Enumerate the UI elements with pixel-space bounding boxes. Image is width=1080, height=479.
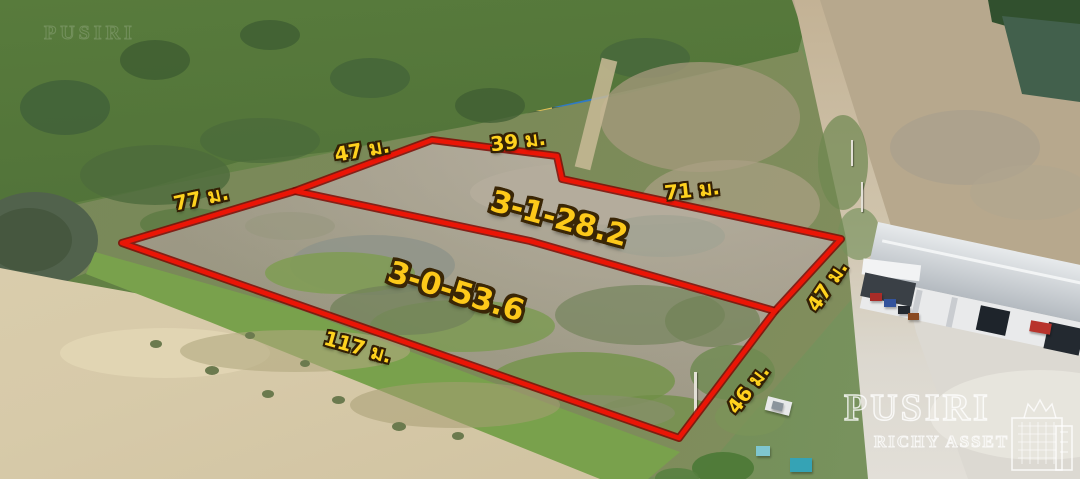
dimension-label-top-right: 71 ม. bbox=[663, 171, 722, 209]
dimension-label-top: 39 ม. bbox=[488, 122, 547, 161]
watermark-brand: PUSIRI bbox=[844, 386, 991, 430]
watermark-building-icon bbox=[998, 392, 1078, 476]
watermark: PUSIRI RICHY ASSET bbox=[832, 386, 1080, 479]
watermark-subtitle: RICHY ASSET bbox=[874, 432, 1009, 452]
aerial-photo: 77 ม. 47 ม. 39 ม. 71 ม. 47 ม. 46 ม. 117 … bbox=[0, 0, 1080, 479]
